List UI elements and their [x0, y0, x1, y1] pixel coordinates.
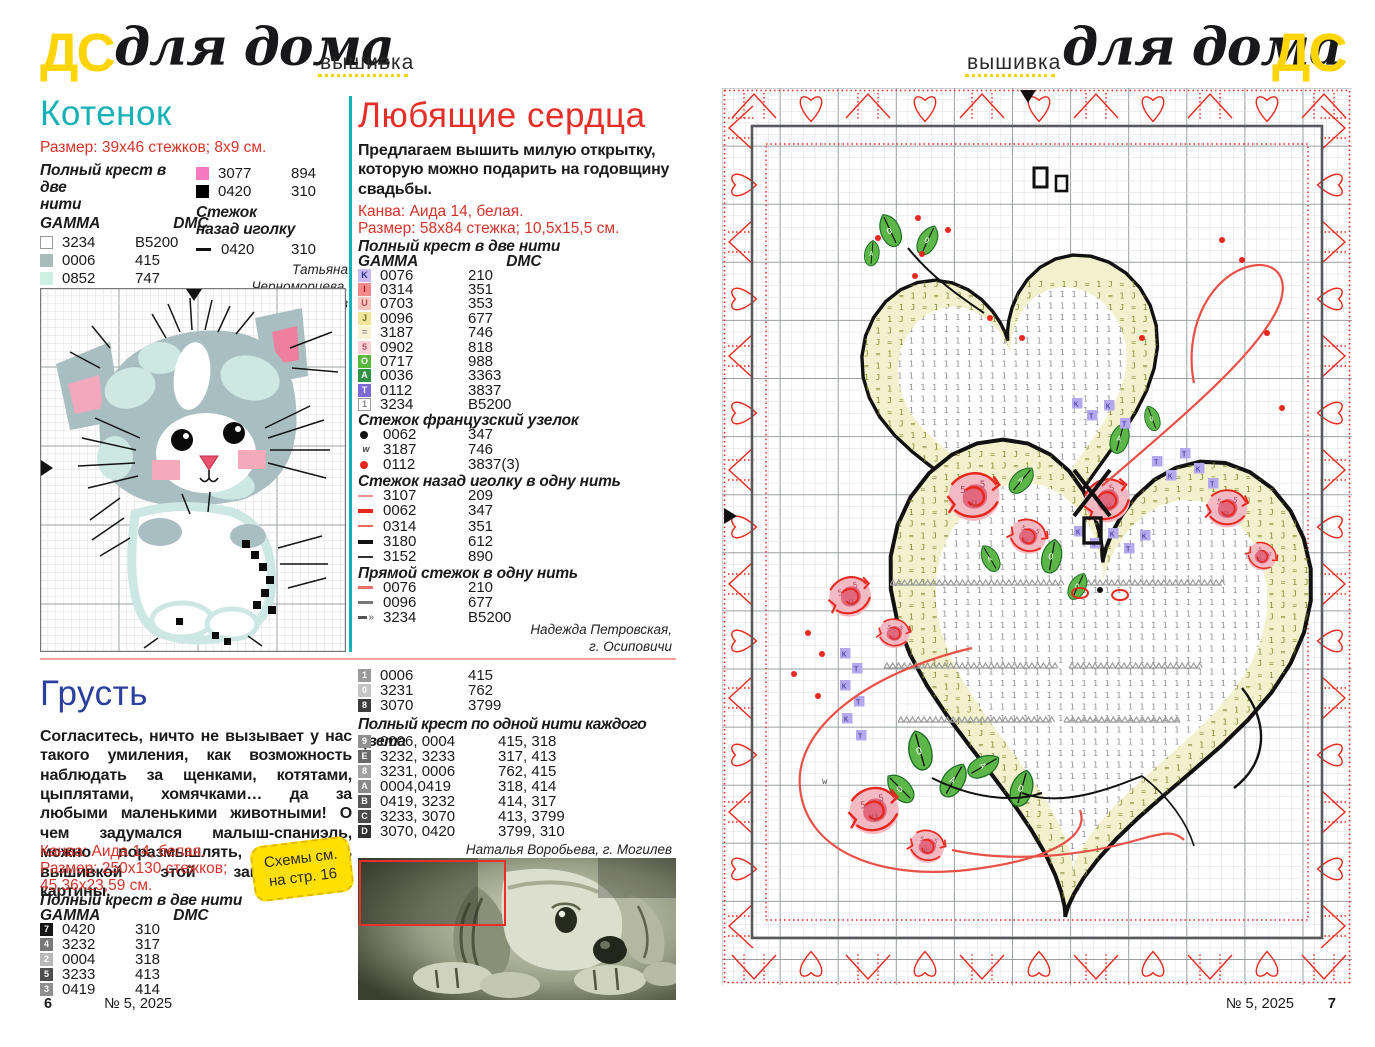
gamma-code: 3231 — [380, 683, 413, 698]
gamma-code: 3232, 3233 — [380, 749, 455, 764]
stitch-symbol-icon — [358, 601, 374, 604]
dmc-code: 414, 317 — [498, 794, 556, 809]
svg-text:5: 5 — [980, 480, 986, 491]
table-row: 53233413 — [40, 967, 200, 982]
gamma-code: 0420 — [62, 922, 95, 937]
wave-underline-right — [965, 74, 1055, 77]
gamma-code: 0006 — [62, 253, 95, 268]
table-row: U0703353 — [358, 297, 578, 311]
table-row: 3077894 — [196, 164, 348, 182]
backstitch-table: 31072090062347031435131806123152890 — [358, 488, 578, 564]
stitch-symbol-icon: J — [358, 312, 371, 325]
dmc-code: 310 — [135, 922, 160, 937]
gamma-code: 3180 — [383, 534, 416, 549]
table-row: =3187746 — [358, 326, 578, 340]
table-row: w3187746 — [358, 442, 578, 457]
table-row: 0076210 — [358, 580, 578, 595]
stitch-symbol-icon — [196, 248, 212, 251]
kotenok-size: Размер: 39х46 стежков; 8х9 см. — [40, 139, 266, 156]
dmc-code: 317 — [135, 937, 160, 952]
stitch-symbol-icon — [358, 586, 374, 589]
gamma-code: 3233, 3070 — [380, 809, 455, 824]
gamma-code: 0076 — [383, 580, 416, 595]
gamma-code: 0006 — [380, 668, 413, 683]
section-right: вышивка — [967, 52, 1061, 73]
stitch-symbol-icon — [196, 167, 209, 180]
hearts-cross-stitch-chart: J=1J=1J=1J=1J=1J=1J=1J=1J=1J=1J=1J=1J=1J… — [722, 88, 1352, 985]
grust-table: 7042031043232317200043185323341330419414 — [40, 922, 200, 996]
gamma-code: 0852 — [62, 271, 95, 286]
table-row: 01123837(3) — [358, 457, 578, 472]
kotenok-table-a: Полный крест в две нити GAMMADMC 3234B52… — [40, 162, 192, 305]
dmc-code: B5200 — [468, 397, 511, 412]
gamma-code: 0420 — [218, 184, 251, 199]
table-header: Стежок — [196, 204, 348, 221]
gamma-code: 3107 — [383, 488, 416, 503]
stitch-symbol-icon: I — [358, 283, 371, 296]
kotenok-title: Котенок — [40, 96, 172, 131]
stitch-symbol-icon: 2 — [40, 953, 53, 966]
gamma-code: 3077 — [218, 166, 251, 181]
table-row: 43232317 — [40, 937, 200, 952]
svg-text:J=1J=1J=1J=1J=1J=1J=1J=1J=1J=1: J=1J=1J=1J=1J=1J=1J=1J=1J=1J=1J=1J=1J= — [874, 520, 1315, 529]
table-row: C3233, 3070413, 3799 — [358, 809, 658, 824]
column-divider — [349, 96, 352, 652]
table-row: 0062347 — [358, 503, 578, 518]
dmc-code: 210 — [468, 580, 493, 595]
stitch-symbol-icon — [358, 461, 374, 469]
kitten-cross-stitch-chart — [40, 288, 346, 652]
svg-text:111111111111111111111111111111: 1111111111111111111111111111111111111 — [884, 609, 1314, 618]
stitch-symbol-icon: 8 — [358, 765, 371, 778]
gamma-code: 0419, 3232 — [380, 794, 455, 809]
stitch-symbol-icon — [358, 556, 374, 558]
dmc-code: 209 — [468, 488, 493, 503]
svg-text:111111111111111111111111111111: 1111111111111111111111111111111111111 — [884, 598, 1314, 607]
gamma-code: 3152 — [383, 549, 416, 564]
stitch-symbol-icon — [196, 185, 209, 198]
dmc-code: 415, 318 — [498, 734, 556, 749]
stitch-symbol-icon: B — [358, 795, 371, 808]
footer-left: 6 № 5, 2025 — [44, 996, 172, 1012]
page-number: 6 — [44, 996, 52, 1012]
stitch-symbol-icon: T — [358, 384, 371, 397]
credit-line: г. Осиповичи — [589, 639, 672, 654]
serdca-canvas: Канва: Аида 14, белая. — [358, 203, 524, 220]
svg-text:5: 5 — [960, 485, 966, 496]
gamma-code: 3232 — [62, 937, 95, 952]
dmc-code: B5200 — [135, 235, 178, 250]
stitch-symbol-icon: 8 — [358, 699, 371, 712]
logo-right: ДС — [1272, 26, 1345, 80]
stitch-symbol-icon: 7 — [40, 923, 53, 936]
table-row: 3107209 — [358, 488, 578, 503]
table-row: 30419414 — [40, 982, 200, 997]
stitch-symbol-icon: D — [358, 825, 371, 838]
col-gamma: GAMMA — [40, 215, 100, 233]
rose-motif: 5U5 — [947, 473, 999, 521]
section-left: вышивка — [320, 52, 414, 73]
page-number: 7 — [1328, 996, 1336, 1012]
table-row: 0420310 — [196, 241, 348, 258]
stitch-symbol-icon: 0 — [358, 684, 371, 697]
table-row: 10006415 — [358, 668, 578, 683]
straight-stitch-table: 00762100096677»3234B5200 — [358, 580, 578, 626]
table-row: 0006415 — [40, 251, 192, 269]
serdca-table: K0076210I0314351U0703353J0096677=3187746… — [358, 268, 578, 412]
gamma-code: 0096 — [383, 595, 416, 610]
grust-size1: Размер: 250х130 стежков; — [40, 860, 227, 877]
table-header: Полный крест в две — [40, 162, 192, 196]
stitch-symbol-icon: w — [358, 443, 374, 456]
stitch-symbol-icon: 5 — [358, 341, 371, 354]
table-row: 13234B5200 — [358, 398, 578, 412]
grey-table: 1000641503231762830703799 — [358, 668, 578, 714]
section-divider — [40, 658, 676, 660]
issue-label: № 5, 2025 — [104, 996, 172, 1012]
dmc-code: 347 — [468, 503, 493, 518]
gamma-code: 3234 — [62, 235, 95, 250]
dmc-code: 3799 — [468, 698, 501, 713]
footer-right: № 5, 2025 7 — [1150, 996, 1336, 1012]
dmc-code: 351 — [468, 519, 493, 534]
grust-title: Грусть — [40, 676, 148, 711]
table-header: нити — [40, 196, 192, 213]
dmc-code: 347 — [468, 427, 493, 442]
wave-underline-left — [318, 74, 408, 77]
dmc-code: 318, 414 — [498, 779, 556, 794]
stitch-symbol-icon: U — [358, 297, 371, 310]
table-row: 20004318 — [40, 952, 200, 967]
stitch-symbol-icon — [40, 254, 53, 267]
stitch-symbol-icon — [40, 236, 53, 249]
gamma-code: 3231, 0006 — [380, 764, 455, 779]
table-row: 0852747 — [40, 269, 192, 287]
table-row: 0096677 — [358, 595, 578, 610]
gamma-code: 0062 — [383, 427, 416, 442]
serdca-intro: Предлагаем вышить милую открытку, котору… — [358, 141, 672, 199]
dmc-code: 413, 3799 — [498, 809, 565, 824]
stitch-symbol-icon: 5 — [40, 968, 53, 981]
gamma-code: 0006, 0004 — [380, 734, 455, 749]
table-row: 03231762 — [358, 683, 578, 698]
dmc-code: 612 — [468, 534, 493, 549]
gamma-code: 0062 — [383, 503, 416, 518]
gamma-code: 0112 — [383, 457, 415, 472]
dmc-code: 747 — [135, 271, 160, 286]
credit-line: Надежда Петровская, — [530, 622, 672, 637]
credit: Надежда Петровская, г. Осиповичи — [358, 622, 672, 656]
dmc-code: 762 — [468, 683, 493, 698]
stitch-symbol-icon — [358, 509, 374, 513]
stitch-symbol-icon — [358, 431, 374, 439]
svg-text:5: 5 — [860, 800, 867, 811]
stitch-symbol-icon: 1 — [358, 669, 371, 682]
grust-canvas: Канва: Аида 14, белая. — [40, 843, 206, 860]
table-row: 0314351 — [358, 519, 578, 534]
svg-text:111111111111111111111111111111: 1111111111111111111111111111111111111 — [884, 563, 1314, 572]
table-header: назад иголку — [196, 221, 348, 238]
dmc-code: 3799, 310 — [498, 824, 565, 839]
gamma-code: 0314 — [383, 519, 416, 534]
stitch-symbol-icon — [358, 525, 374, 527]
dmc-code: 746 — [468, 325, 493, 340]
table-row: 3152890 — [358, 549, 578, 564]
dog-photo — [358, 858, 676, 1000]
table-row: A0004,0419318, 414 — [358, 779, 658, 794]
stitch-symbol-icon: = — [358, 326, 371, 339]
credit: Наталья Воробьева, г. Могилев — [358, 842, 672, 859]
table-row: 83231, 0006762, 415 — [358, 764, 658, 779]
svg-text:U: U — [872, 813, 879, 824]
svg-text:111111111111111111111111111111: 1111111111111111111111111111111111111 — [884, 633, 1314, 642]
table-row: D3070, 04203799, 310 — [358, 824, 658, 839]
gamma-code: 3070, 0420 — [380, 824, 455, 839]
serdca-title: Любящие сердца — [358, 98, 646, 133]
svg-text:=1J=1J=1J=1J=1J=1J=1J=1J=1J=: =1J=1J=1J=1J=1J=1J=1J=1J=1J= — [864, 292, 1189, 301]
stitch-symbol-icon: 9 — [358, 735, 371, 748]
table-row: 3234B5200 — [40, 233, 192, 251]
stitch-symbol-icon: A — [358, 780, 371, 793]
table-row: 0062347 — [358, 427, 578, 442]
dmc-code: 762, 415 — [498, 764, 556, 779]
dmc-code: 677 — [468, 595, 493, 610]
svg-text:U: U — [971, 499, 977, 510]
gamma-code: 0420 — [221, 242, 254, 257]
gamma-code: 0419 — [62, 982, 95, 997]
stitch-symbol-icon: 1 — [358, 398, 371, 411]
dmc-code: 3837(3) — [468, 457, 520, 472]
dmc-code: 317, 413 — [498, 749, 556, 764]
stitch-symbol-icon: 3 — [40, 983, 53, 996]
stitch-symbol-icon: K — [358, 269, 371, 282]
dmc-code: 310 — [291, 242, 316, 257]
magazine-spread: ДС для дома вышивка вышивка для дома ДС … — [0, 0, 1375, 1047]
gamma-code: 0004,0419 — [380, 779, 451, 794]
dmc-code: 413 — [135, 967, 160, 982]
stitch-symbol-icon: 4 — [40, 938, 53, 951]
french-knot-table: 0062347w318774601123837(3) — [358, 427, 578, 473]
table-row: E3232, 3233317, 413 — [358, 749, 658, 764]
dmc-code: 414 — [135, 982, 160, 997]
svg-text:111111111111111111111111111111: 1111111111111111111111111111111111111 — [884, 621, 1314, 630]
stitch-symbol-icon: A — [358, 369, 371, 382]
serdca-size: Размер: 58х84 стежка; 10,5х15,5 см. — [358, 220, 619, 237]
gamma-code: 0004 — [62, 952, 95, 967]
issue-label: № 5, 2025 — [1226, 996, 1294, 1012]
dmc-code: 415 — [468, 668, 493, 683]
stitch-symbol-icon — [40, 272, 53, 285]
dmc-code: 890 — [468, 549, 493, 564]
gamma-code: 3233 — [62, 967, 95, 982]
stitch-symbol-icon: O — [358, 355, 371, 368]
svg-text:5: 5 — [878, 793, 885, 804]
stitch-symbol-icon — [358, 495, 374, 497]
table-row: 830703799 — [358, 698, 578, 713]
stitch-symbol-icon: E — [358, 750, 371, 763]
stitch-symbol-icon: C — [358, 810, 371, 823]
dmc-code: 746 — [468, 442, 493, 457]
dmc-code: 318 — [135, 952, 160, 967]
table-row: 0420310 — [196, 182, 348, 200]
table-row: B0419, 3232414, 317 — [358, 794, 658, 809]
dmc-code: 894 — [291, 166, 316, 181]
blend-table: 90006, 0004415, 318E3232, 3233317, 41383… — [358, 734, 658, 839]
stitch-symbol-icon — [358, 540, 374, 544]
gamma-code: 3234 — [380, 397, 413, 412]
table-row: 3180612 — [358, 534, 578, 549]
table-row: A00363363 — [358, 369, 578, 383]
table-row: 70420310 — [40, 922, 200, 937]
logo-left: ДС — [40, 26, 113, 80]
table-row: 90006, 0004415, 318 — [358, 734, 658, 749]
svg-text:w: w — [822, 777, 828, 787]
dmc-code: 415 — [135, 253, 160, 268]
dmc-code: 310 — [291, 184, 316, 199]
gamma-code: 3187 — [383, 442, 416, 457]
gamma-code: 3070 — [380, 698, 413, 713]
